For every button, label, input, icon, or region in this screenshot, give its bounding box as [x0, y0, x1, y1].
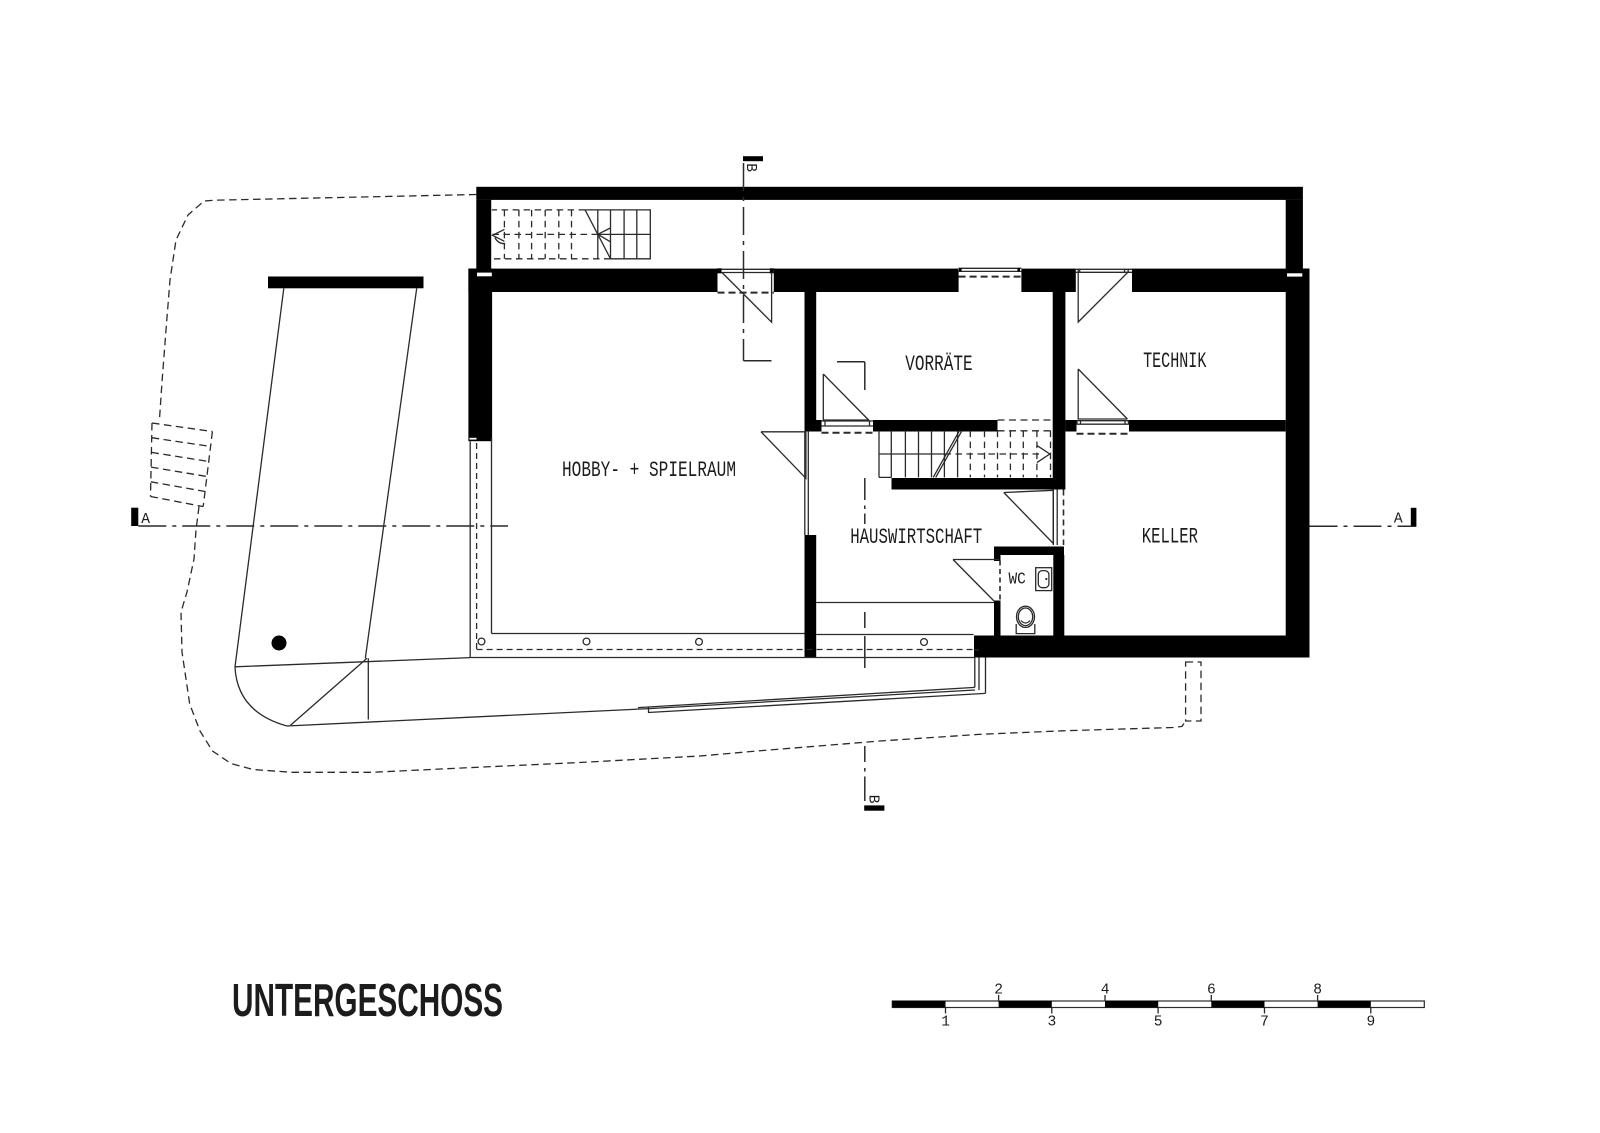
svg-text:5: 5 [1154, 1015, 1163, 1031]
svg-text:TECHNIK: TECHNIK [1143, 349, 1207, 374]
svg-text:3: 3 [1048, 1015, 1057, 1031]
svg-text:9: 9 [1367, 1015, 1376, 1031]
svg-text:KELLER: KELLER [1142, 525, 1198, 550]
svg-text:UNTERGESCHOSS: UNTERGESCHOSS [232, 974, 503, 1026]
svg-text:WC: WC [1009, 570, 1026, 589]
svg-text:2: 2 [994, 982, 1003, 998]
svg-text:A: A [1394, 511, 1403, 527]
svg-text:4: 4 [1101, 982, 1110, 998]
svg-text:B: B [864, 795, 880, 804]
svg-text:A: A [141, 512, 150, 528]
svg-text:1: 1 [941, 1015, 950, 1031]
svg-text:VORRÄTE: VORRÄTE [905, 352, 972, 377]
svg-text:6: 6 [1207, 982, 1216, 998]
svg-text:HOBBY- + SPIELRAUM: HOBBY- + SPIELRAUM [562, 458, 736, 483]
svg-text:7: 7 [1260, 1015, 1269, 1031]
svg-text:B: B [742, 163, 758, 172]
svg-text:8: 8 [1313, 982, 1322, 998]
svg-text:HAUSWIRTSCHAFT: HAUSWIRTSCHAFT [850, 525, 982, 550]
